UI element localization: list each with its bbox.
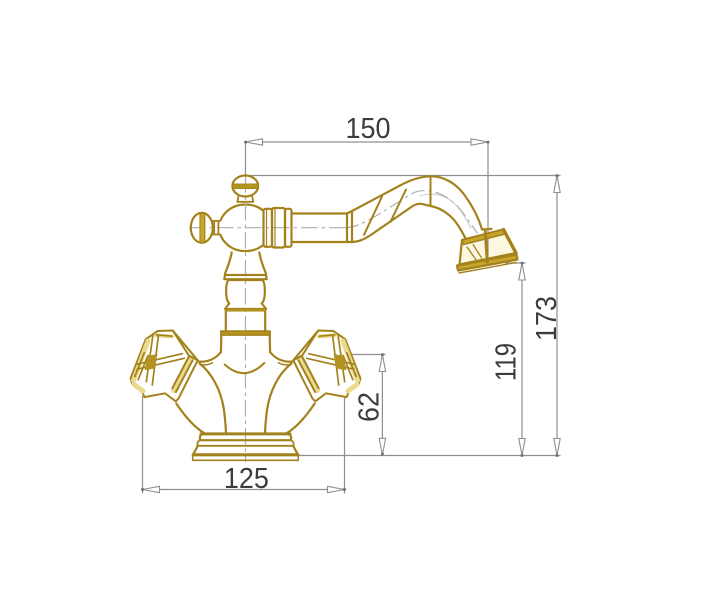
svg-text:150: 150 (346, 112, 391, 144)
svg-text:62: 62 (353, 392, 385, 422)
svg-text:119: 119 (489, 343, 522, 381)
svg-text:125: 125 (224, 462, 269, 494)
svg-text:173: 173 (530, 296, 562, 341)
